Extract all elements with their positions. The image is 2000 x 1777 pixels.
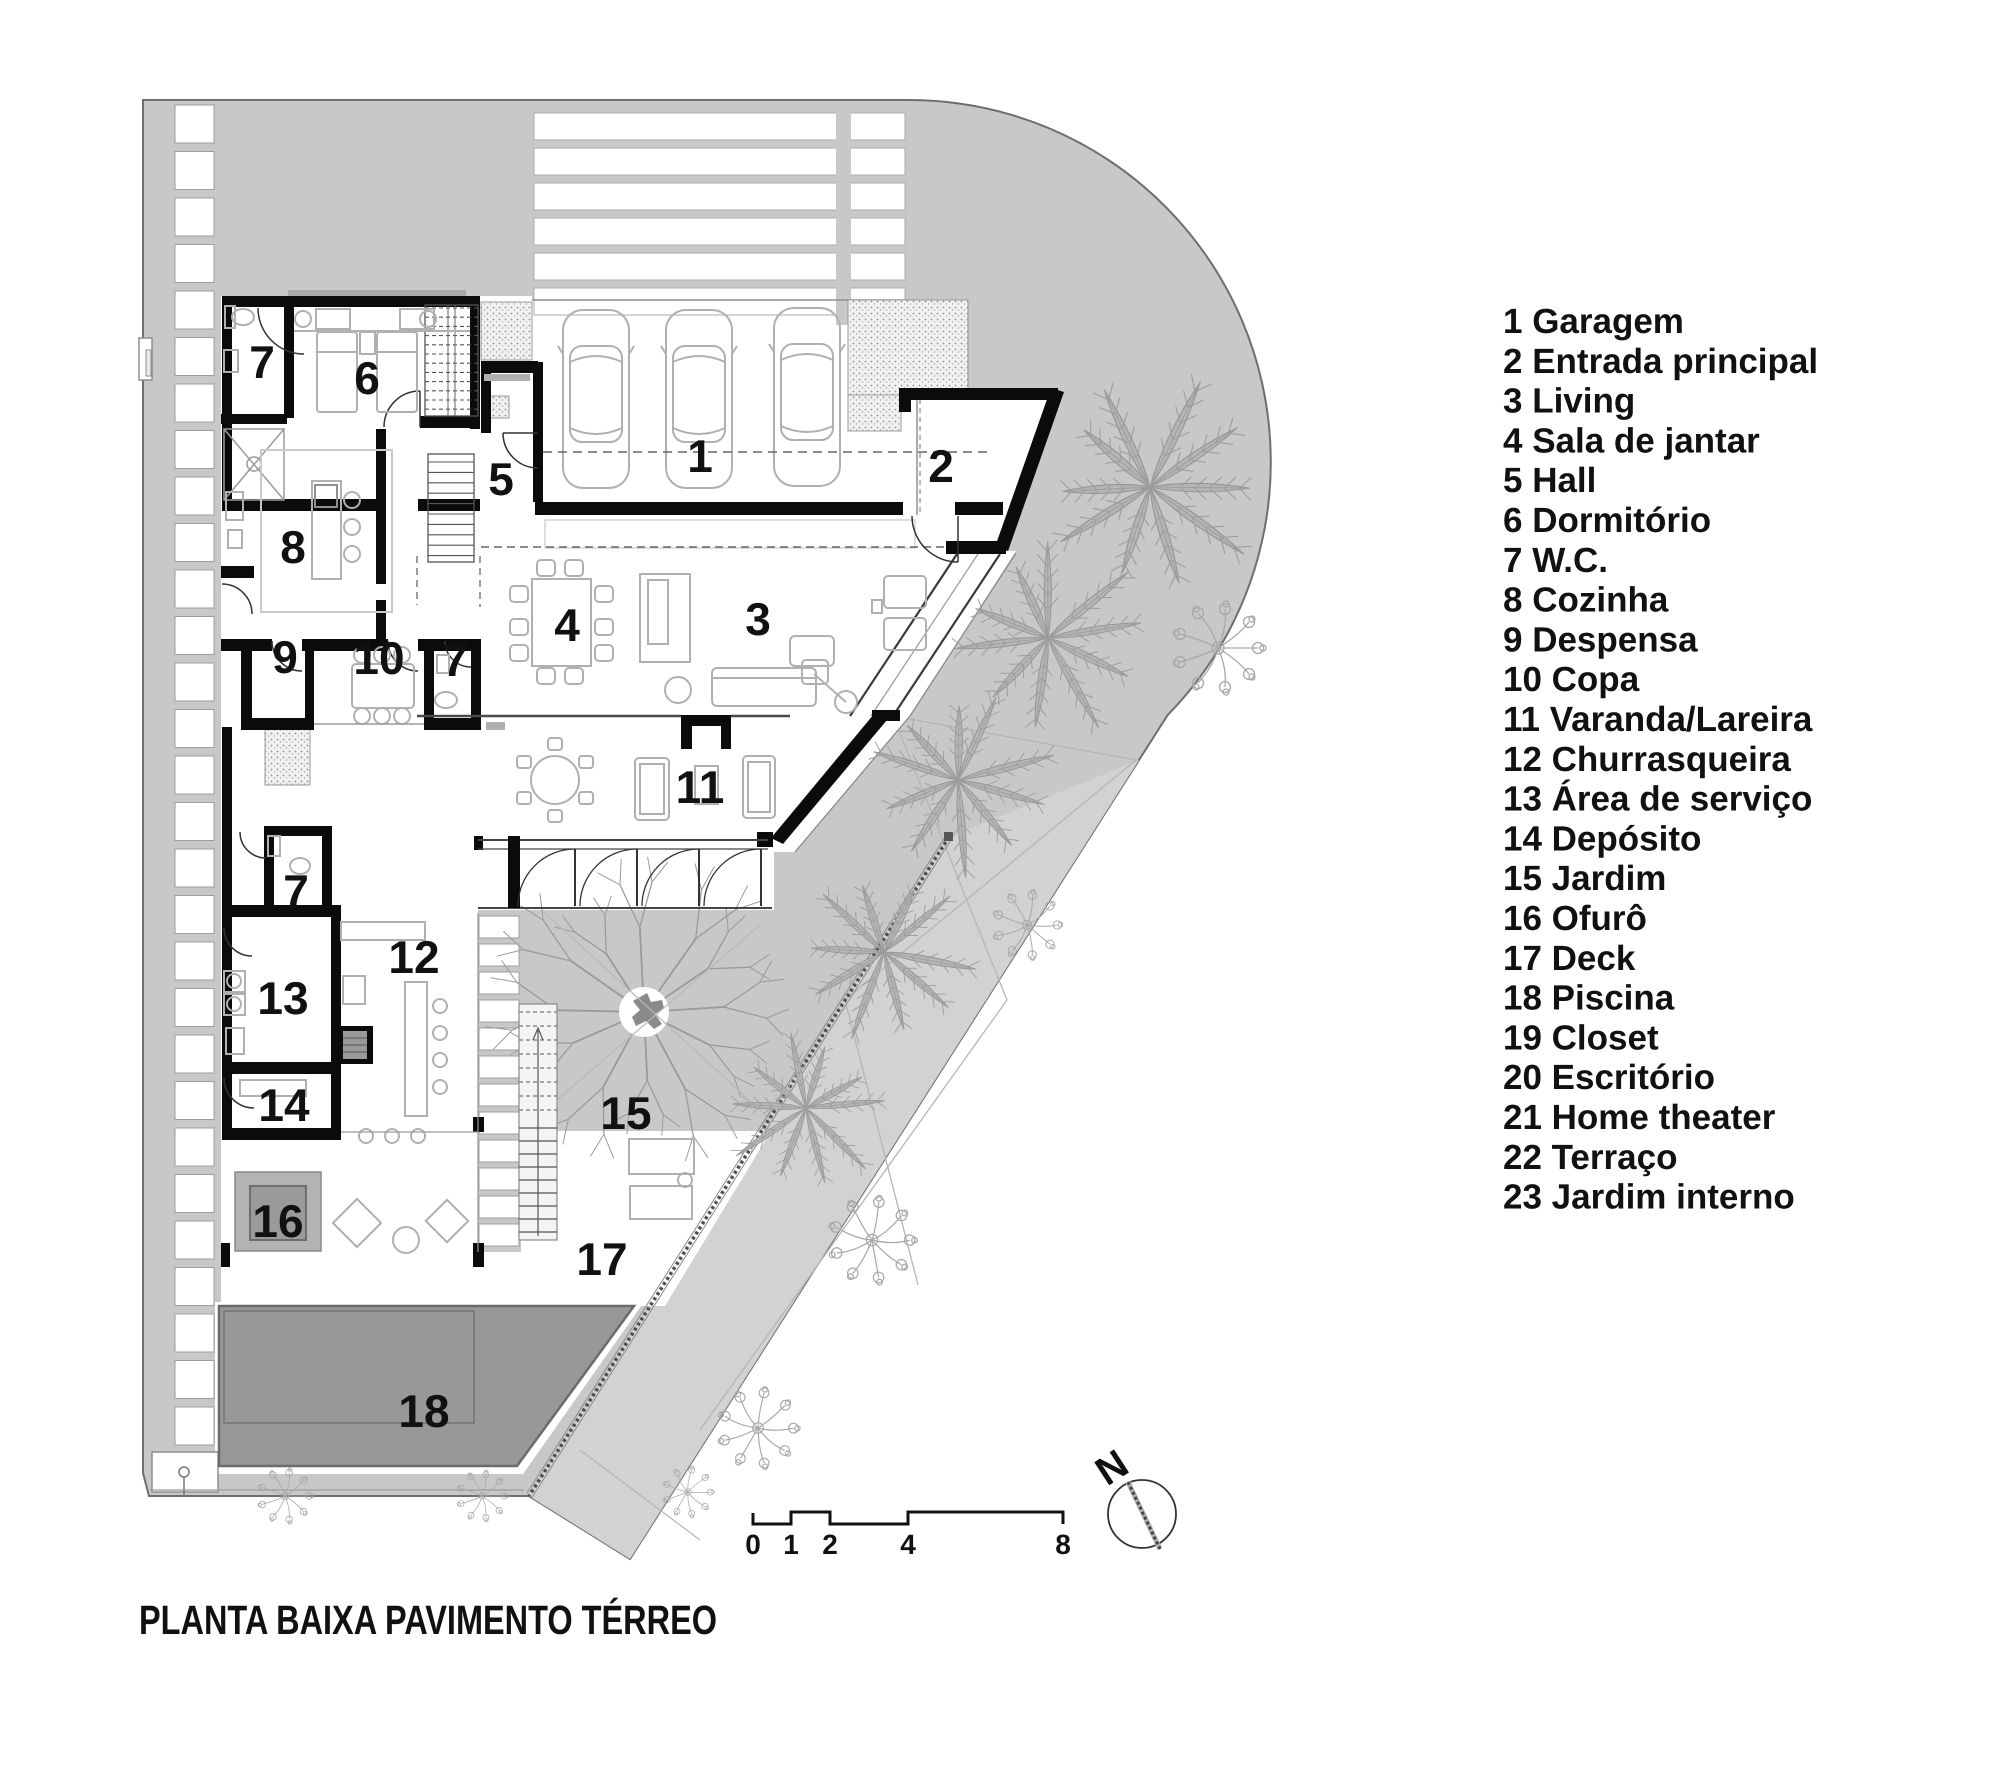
svg-text:2: 2 — [822, 1529, 838, 1560]
svg-text:0: 0 — [745, 1529, 761, 1560]
svg-text:8 Cozinha: 8 Cozinha — [1503, 581, 1669, 620]
svg-text:19 Closet: 19 Closet — [1503, 1018, 1659, 1057]
svg-text:8: 8 — [1055, 1529, 1071, 1560]
svg-text:2: 2 — [928, 440, 954, 492]
svg-text:16: 16 — [252, 1195, 303, 1247]
svg-text:15: 15 — [600, 1087, 651, 1139]
svg-text:11: 11 — [676, 761, 725, 813]
svg-text:14: 14 — [258, 1079, 310, 1131]
svg-text:16 Ofurô: 16 Ofurô — [1503, 899, 1647, 938]
svg-text:4: 4 — [900, 1529, 916, 1560]
svg-text:7 W.C.: 7 W.C. — [1503, 541, 1608, 580]
svg-text:9 Despensa: 9 Despensa — [1503, 620, 1698, 659]
svg-text:20 Escritório: 20 Escritório — [1503, 1058, 1715, 1097]
svg-text:10 Copa: 10 Copa — [1503, 660, 1640, 699]
svg-text:5: 5 — [488, 453, 514, 505]
svg-text:13: 13 — [257, 972, 308, 1024]
svg-text:7: 7 — [249, 336, 275, 388]
svg-text:3: 3 — [745, 593, 771, 645]
svg-text:4 Sala de jantar: 4 Sala de jantar — [1503, 421, 1760, 460]
svg-text:10: 10 — [353, 632, 404, 684]
svg-text:1: 1 — [783, 1529, 799, 1560]
svg-text:14 Depósito: 14 Depósito — [1503, 819, 1701, 858]
svg-text:6 Dormitório: 6 Dormitório — [1503, 501, 1711, 540]
svg-text:12: 12 — [388, 931, 439, 983]
svg-text:11 Varanda/Lareira: 11 Varanda/Lareira — [1503, 700, 1813, 739]
svg-text:22 Terraço: 22 Terraço — [1503, 1138, 1677, 1177]
svg-text:17: 17 — [576, 1233, 627, 1285]
svg-text:17 Deck: 17 Deck — [1503, 939, 1636, 978]
svg-text:9: 9 — [272, 631, 298, 683]
svg-text:23 Jardim interno: 23 Jardim interno — [1503, 1178, 1795, 1217]
svg-text:PLANTA BAIXA PAVIMENTO TÉRREO: PLANTA BAIXA PAVIMENTO TÉRREO — [139, 1597, 717, 1643]
svg-text:8: 8 — [280, 521, 306, 573]
svg-text:7: 7 — [442, 634, 468, 686]
svg-text:7: 7 — [283, 865, 309, 917]
svg-text:15 Jardim: 15 Jardim — [1503, 859, 1666, 898]
svg-text:4: 4 — [554, 599, 580, 651]
svg-text:1 Garagem: 1 Garagem — [1503, 302, 1684, 341]
svg-text:18 Piscina: 18 Piscina — [1503, 979, 1675, 1018]
svg-text:3 Living: 3 Living — [1503, 382, 1635, 421]
svg-text:13 Área de serviço: 13 Área de serviço — [1503, 779, 1812, 819]
svg-text:1: 1 — [687, 430, 713, 482]
svg-text:2 Entrada principal: 2 Entrada principal — [1503, 342, 1818, 381]
svg-text:5 Hall: 5 Hall — [1503, 461, 1596, 500]
svg-text:18: 18 — [398, 1385, 449, 1437]
svg-text:21 Home theater: 21 Home theater — [1503, 1098, 1776, 1137]
svg-text:6: 6 — [354, 352, 380, 404]
svg-text:12 Churrasqueira: 12 Churrasqueira — [1503, 740, 1791, 779]
